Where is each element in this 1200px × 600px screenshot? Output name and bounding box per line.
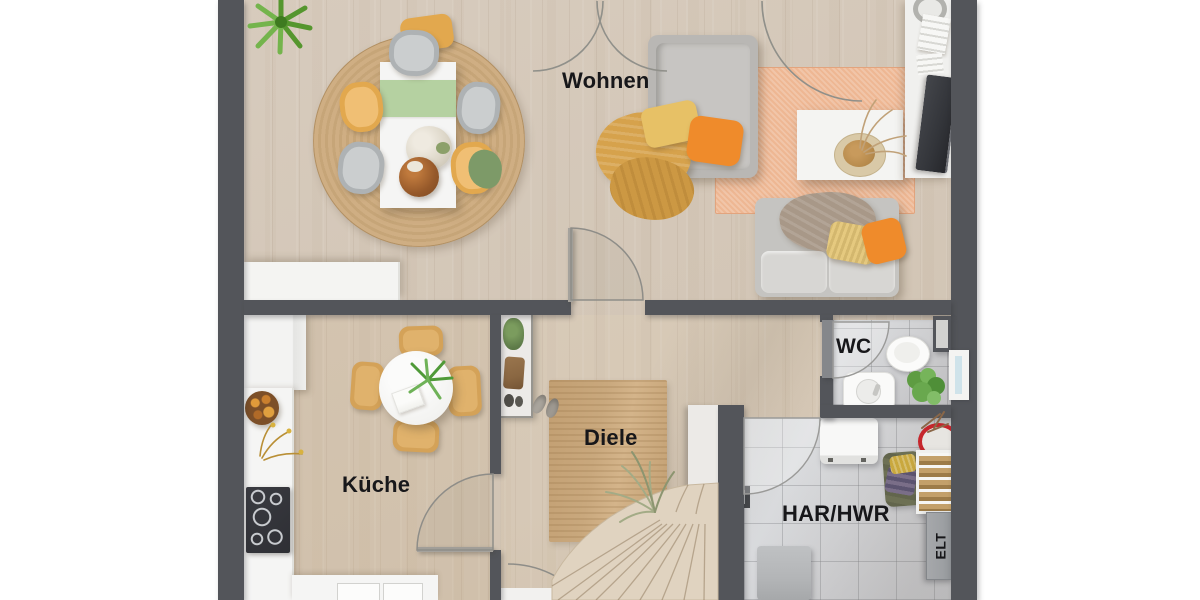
room-label-kitchen: Küche [342,472,410,498]
door-arc-kitchen [417,474,493,550]
floor-plan-canvas: ELT [0,0,1200,600]
door-arc-terrace-single [762,1,862,101]
palm-plant [250,0,310,52]
basket-utensils [922,412,948,432]
room-label-wc: WC [836,335,871,359]
room-label-utility: HAR/HWR [782,501,890,527]
kitchen-table-plant [410,360,452,398]
wc-plant [907,368,945,405]
door-arc-living-hall [571,228,643,300]
door-arc-utility [744,418,820,494]
room-label-hallway: Diele [584,425,638,451]
dried-plant [860,100,906,156]
room-label-living: Wohnen [562,68,650,94]
yellow-branches [260,423,304,461]
door-arc-terrace-double [533,1,667,71]
